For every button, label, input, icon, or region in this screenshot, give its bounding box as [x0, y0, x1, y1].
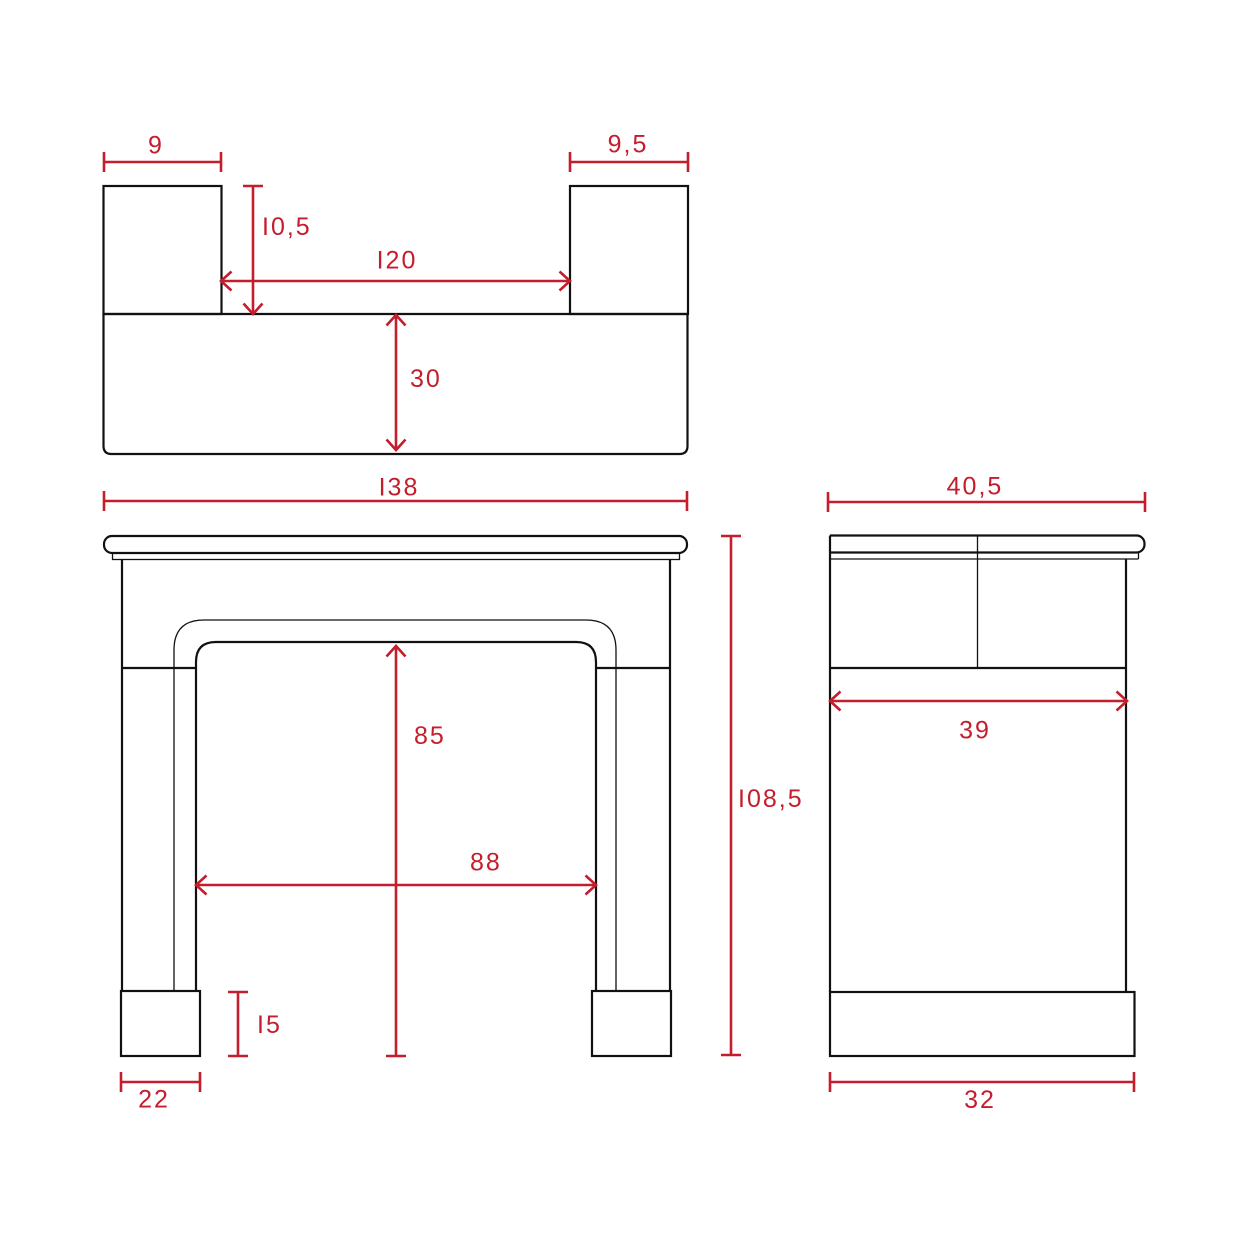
- svg-text:I5: I5: [257, 1011, 282, 1039]
- svg-text:I20: I20: [377, 247, 418, 275]
- svg-text:9,5: 9,5: [608, 131, 649, 159]
- svg-text:22: 22: [138, 1086, 170, 1114]
- svg-text:30: 30: [410, 365, 442, 393]
- svg-text:9: 9: [148, 132, 164, 160]
- svg-text:I08,5: I08,5: [738, 785, 804, 813]
- svg-text:39: 39: [959, 717, 991, 745]
- svg-text:85: 85: [414, 722, 446, 750]
- svg-text:I38: I38: [379, 474, 420, 502]
- svg-text:88: 88: [470, 849, 502, 877]
- svg-text:32: 32: [964, 1086, 996, 1114]
- svg-text:40,5: 40,5: [947, 473, 1004, 501]
- svg-text:I0,5: I0,5: [262, 213, 312, 241]
